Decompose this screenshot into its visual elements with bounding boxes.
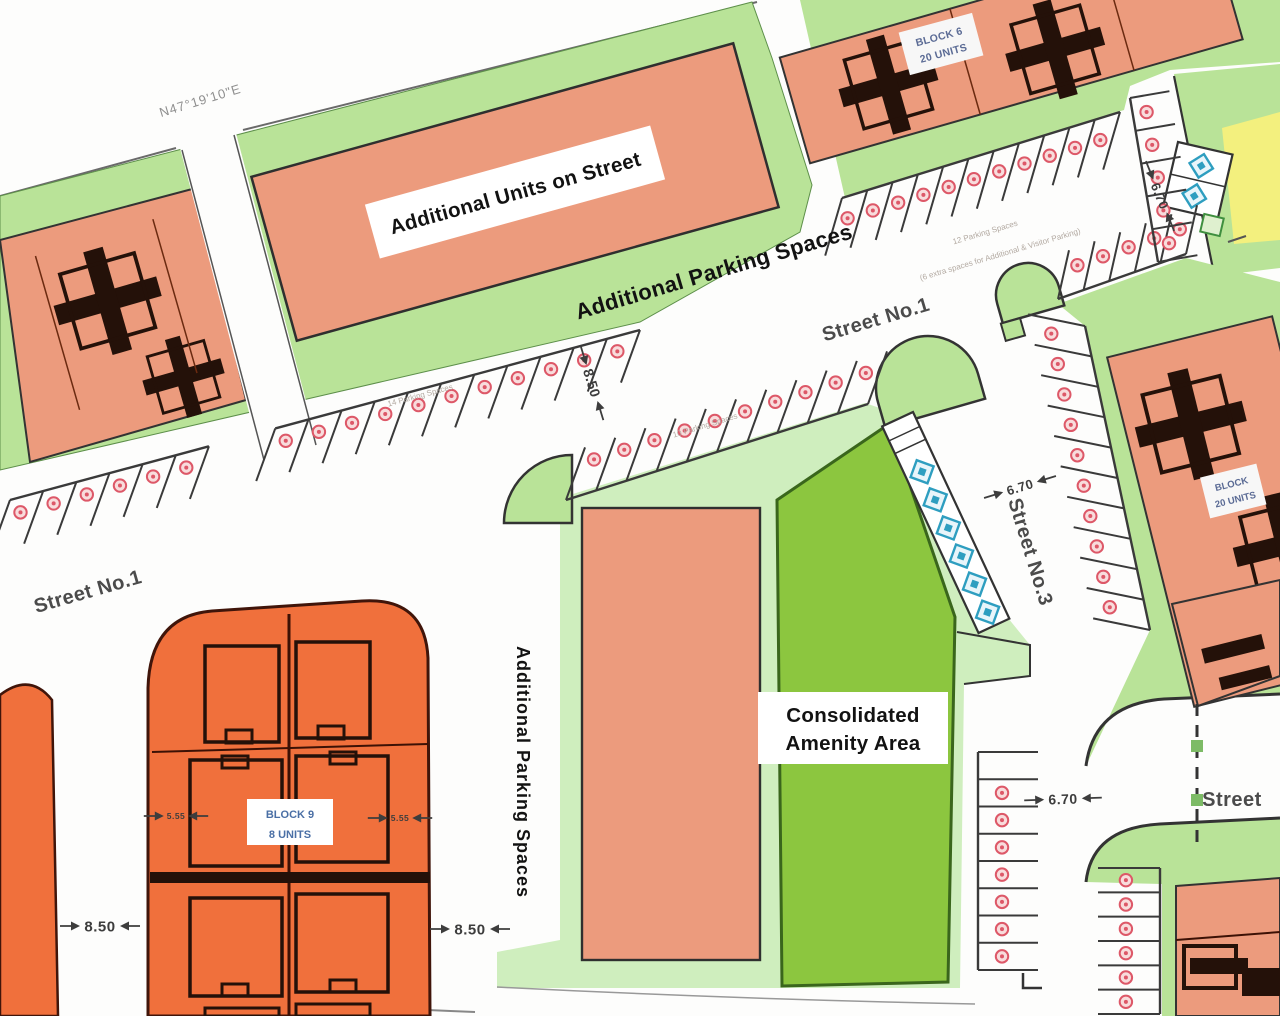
parking-space-dot-center [1000,845,1004,849]
amenity-label-line1: Consolidated [786,704,919,727]
parking-space-dot-center [1108,605,1112,609]
parking-space-dot-center [118,484,122,488]
parking-space-dot-center [921,193,925,197]
parking-space-dot-center [1082,484,1086,488]
central-building [582,508,760,960]
parking-space-dot-center [1000,873,1004,877]
parking-space-dot-center [1000,927,1004,931]
parking-space-dot-center [383,412,387,416]
parking-space-dot-center [1075,263,1079,267]
parking-space-dot-center [1124,951,1128,955]
parking-space-dot-center [1098,138,1102,142]
parking-space-dot-center [743,409,747,413]
site-plan-drawing: N47°19'10"E 173.71 Additional Units on S… [0,0,1280,1016]
parking-space-dot-center [52,501,56,505]
parking-space-dot-center [1049,332,1053,336]
parking-space-dot-center [972,177,976,181]
parking-space-dot-center [652,438,656,442]
parking-space-dot-center [416,403,420,407]
parking-space-dot-center [1056,362,1060,366]
green-stall-square [1200,214,1224,236]
parking-space-dot-center [1127,245,1131,249]
parking-space-dot-center [1124,878,1128,882]
parking-space-dot-center [1124,1000,1128,1004]
parking-space-dot-center [549,367,553,371]
parking-space-dot-center [1000,900,1004,904]
amenity-label-line2: Amenity Area [786,732,921,755]
parking-space-dot-center [1124,927,1128,931]
parking-space-dot-center [896,201,900,205]
parking-space-dot-center [85,492,89,496]
orange-block-sliver [0,685,58,1016]
parking-space-dot-center [834,381,838,385]
dimension-text: 5.55 [391,813,410,823]
site-plan-page: N47°19'10"E 173.71 Additional Units on S… [0,0,1280,1016]
parking-space-dot-center [1156,176,1160,180]
parking-space-dot-center [184,466,188,470]
centerline-green-dash [1191,740,1203,752]
dimension-text: 6.70 [1048,791,1078,808]
parking-space-dot-center [284,439,288,443]
parking-space-dot-center [1178,227,1182,231]
parking-space-dot-center [317,430,321,434]
parking-space-dot-center [1000,954,1004,958]
parking-space-dot-center [1101,254,1105,258]
parking-space-dot-center [1069,423,1073,427]
parking-space-dot-center [1048,154,1052,158]
parking-space-dot-center [622,448,626,452]
parking-space-dot-center [1095,544,1099,548]
parking-space-dot-center [450,394,454,398]
additional-parking-vertical-label: Additional Parking Spaces [513,646,533,898]
parking-space-dot-center [151,475,155,479]
parking-space-dot-center [871,208,875,212]
parking-space-dot-center [803,390,807,394]
parking-space-dot-center [947,185,951,189]
parking-space-dot-center [1167,241,1171,245]
parking-space-dot-center [1124,903,1128,907]
parking-space-dot-center [1101,575,1105,579]
parking-space-dot-center [592,457,596,461]
parking-space-dot-center [615,349,619,353]
parking-space-dot-center [773,400,777,404]
parking-space-dot-center [483,385,487,389]
parking-space-dot-center [997,169,1001,173]
parking-space-dot-center [1075,453,1079,457]
parking-space-dot-center [1150,143,1154,147]
parking-space-dot-center [1000,791,1004,795]
parking-space-dot-center [350,421,354,425]
parking-space-dot-center [864,371,868,375]
parking-space-dot-center [1073,146,1077,150]
dimension-text: 5.55 [167,811,186,821]
parking-space-dot-center [1145,110,1149,114]
parking-space-dot-center [516,376,520,380]
dimension-text: 8.50 [84,918,115,935]
block9-label-line1: BLOCK 9 [266,809,314,821]
block9-label-line2: 8 UNITS [269,829,311,841]
parking-space-dot-center [1022,162,1026,166]
parking-space-dot-center [1088,514,1092,518]
parking-space-dot-center [18,510,22,514]
parking-space-dot-center [1000,818,1004,822]
parking-space-dot-center [1062,392,1066,396]
parking-space-dot-center [1124,976,1128,980]
dimension-text: 8.50 [454,921,485,938]
street-label-southeast: Street [1202,789,1262,811]
